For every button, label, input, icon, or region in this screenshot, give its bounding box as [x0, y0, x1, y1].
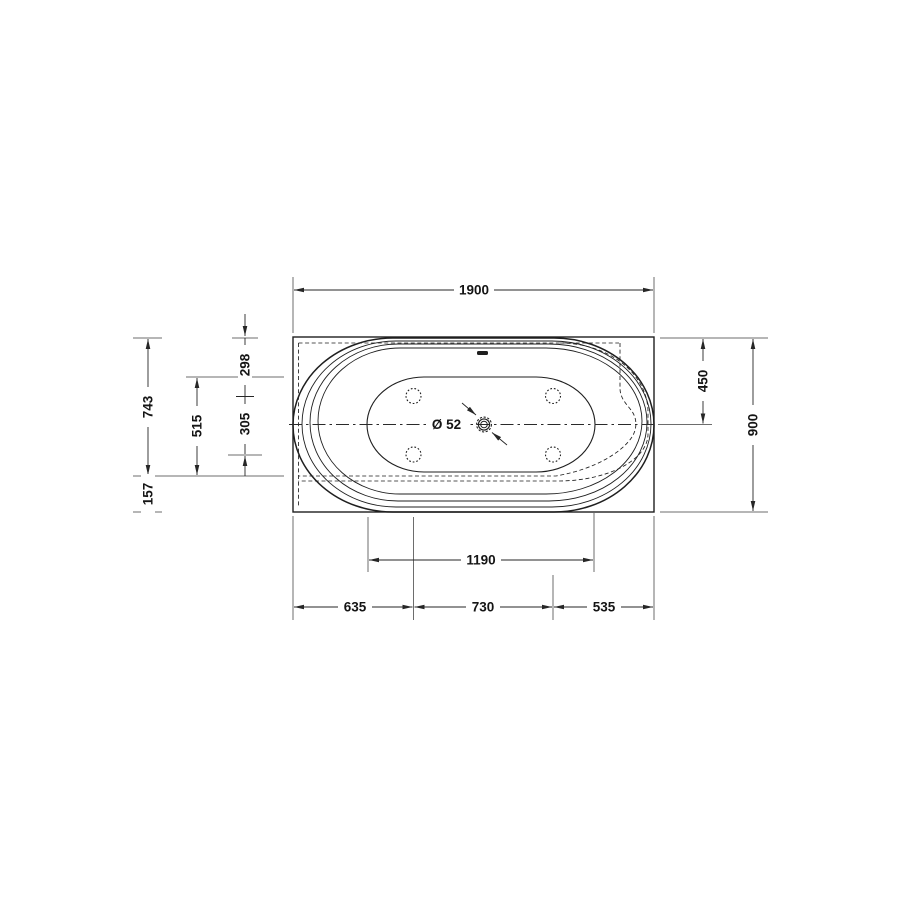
jet-nozzle-back-left — [406, 389, 421, 404]
jet-nozzle-front-left — [406, 447, 421, 462]
dim-label-well-length: 1190 — [466, 553, 495, 568]
dim-label-jets-to-jets: 730 — [472, 600, 495, 615]
dim-label-overall-length: 1900 — [459, 283, 489, 298]
overflow-marker — [477, 351, 488, 355]
dim-label-back-to-center: 450 — [696, 370, 711, 393]
rim-hidden-edge-right-outer — [299, 343, 649, 481]
dim-label-group-900: 900 — [746, 405, 761, 445]
drain-diameter-label: Ø 52 — [432, 417, 461, 432]
dim-label-group-450: 450 — [696, 361, 711, 401]
drain-leader-arrow-upper — [462, 403, 476, 415]
extension-lines — [133, 277, 768, 620]
dim-label-group-298: 298 — [238, 345, 253, 385]
jet-nozzle-front-right — [546, 447, 561, 462]
dim-label-back-to-jets: 298 — [238, 353, 253, 376]
dim-label-back-to-rim-front: 743 — [141, 395, 156, 418]
tub-outer-outline — [293, 338, 654, 512]
dim-label-edge-to-jets-left: 635 — [344, 600, 367, 615]
dim-label-overall-width: 900 — [746, 414, 761, 437]
tub-artwork — [289, 337, 658, 512]
dim-label-jets-to-edge-right: 535 — [593, 600, 616, 615]
dimension-labels: 1900 1190 635 730 535 Ø 52 743 157 515 2… — [141, 283, 761, 615]
dim-label-jets-row-spacing: 305 — [238, 412, 253, 435]
dim-label-well-width: 515 — [190, 414, 205, 437]
bathtub-plan-technical-drawing: 1900 1190 635 730 535 Ø 52 743 157 515 2… — [0, 0, 900, 900]
dim-label-rim-front-to-edge: 157 — [141, 483, 156, 506]
dim-label-group-515: 515 — [190, 406, 205, 446]
dim-label-group-743: 743 — [141, 387, 156, 427]
jet-nozzle-back-right — [546, 389, 561, 404]
dim-label-group-305: 305 — [238, 404, 253, 444]
dim-label-group-157: 157 — [141, 474, 156, 514]
drain-leader-arrow-lower — [492, 433, 507, 446]
